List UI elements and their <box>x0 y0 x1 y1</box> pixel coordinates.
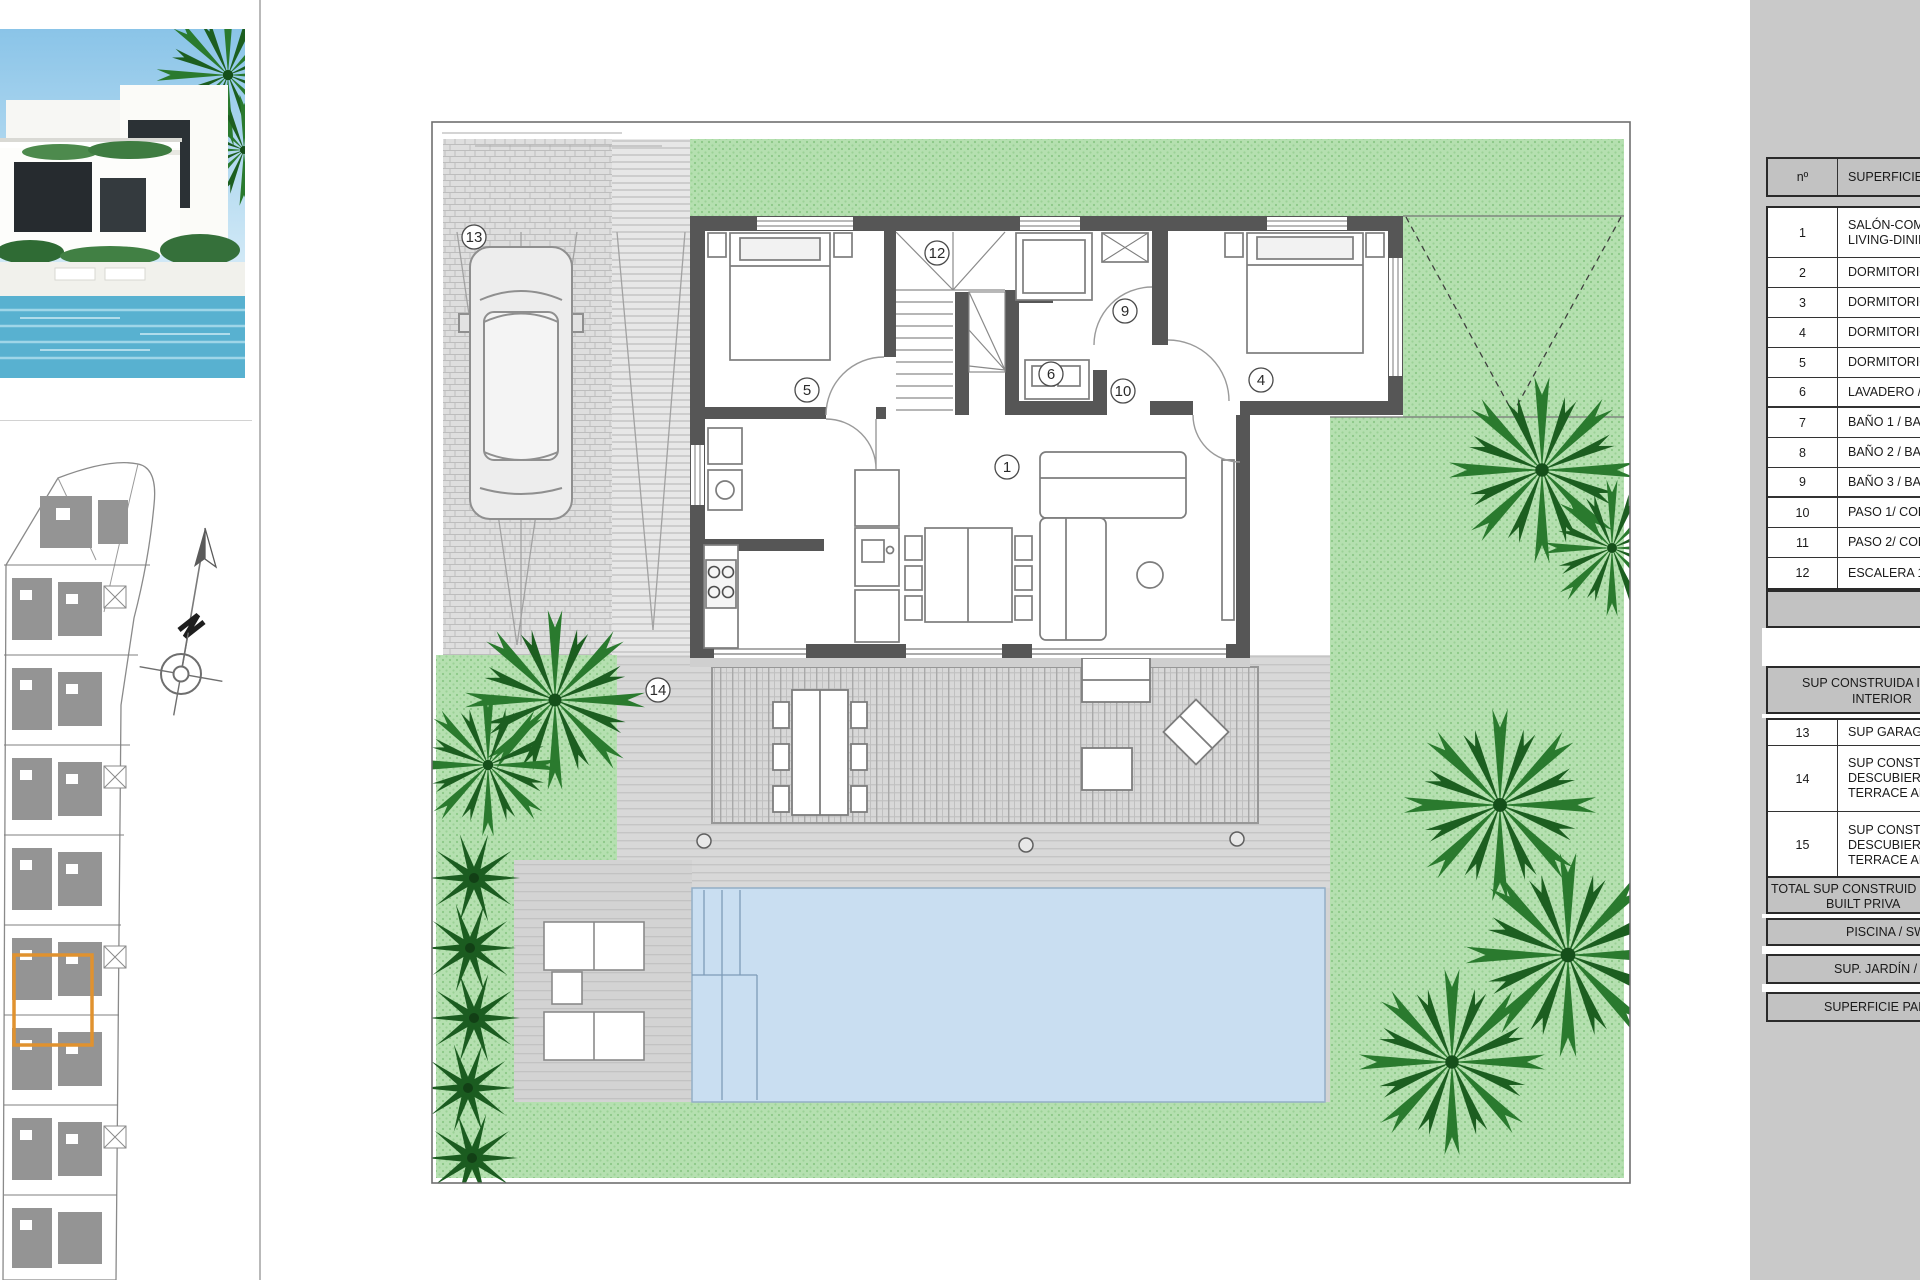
room-surface-table: 1 SALÓN-COMLIVING-DININ 2DORMITORIO 3DOR… <box>1766 206 1920 590</box>
table-row: 11PASO 2/ COR <box>1768 528 1920 558</box>
table-row: 6LAVADERO / <box>1768 378 1920 408</box>
table-row: 5DORMITORIO <box>1768 348 1920 378</box>
table-header-num: nº <box>1768 159 1838 195</box>
label-garage: 13 <box>466 229 483 246</box>
photo-pool <box>0 262 245 378</box>
table-row: 9BAÑO 3 / BA <box>1768 468 1920 498</box>
layout-divider-line <box>259 0 261 1280</box>
label-terrace: 14 <box>650 682 667 699</box>
label-laundry: 6 <box>1047 366 1055 383</box>
label-hallway: 10 <box>1115 383 1132 400</box>
table-row: 12ESCALERA 1 / <box>1768 558 1920 588</box>
table-row: 10PASO 1/ COR <box>1768 498 1920 528</box>
drawing-sheet: 13 12 5 9 6 10 4 1 14 nº SUPERFICIE Ú 1 … <box>0 0 1920 1280</box>
section-header: SUP CONSTRUIDA I INTERIOR <box>1766 666 1920 714</box>
pool-surface-row: PISCINA / SWIM <box>1766 918 1920 946</box>
bedroom-right-furniture <box>1225 233 1384 353</box>
panel-gap <box>1762 946 1920 954</box>
swimming-pool <box>692 888 1325 1102</box>
plan-canvas: 13 12 5 9 6 10 4 1 14 <box>0 0 1920 1280</box>
table-header-title: SUPERFICIE Ú <box>1838 170 1920 185</box>
label-bathroom: 9 <box>1121 303 1129 320</box>
total-row: TOTAL SUP CONSTRUID BUILT PRIVA <box>1766 876 1920 914</box>
label-bedroom-left: 5 <box>803 382 811 399</box>
label-living: 1 <box>1003 459 1011 476</box>
table-spacer-row <box>1766 590 1920 628</box>
label-bedroom-right: 4 <box>1257 372 1265 389</box>
panel-gap <box>1762 628 1920 666</box>
garage-driveway <box>442 133 690 655</box>
table-row: 1 SALÓN-COMLIVING-DININ <box>1768 208 1920 258</box>
table-row: 3DORMITORIO <box>1768 288 1920 318</box>
photo-villa <box>0 85 240 266</box>
garden-surface-row: SUP. JARDÍN / G <box>1766 954 1920 984</box>
table-header: nº SUPERFICIE Ú <box>1766 157 1920 197</box>
left-column-separator <box>0 420 252 421</box>
panel-gap <box>1762 984 1920 992</box>
label-stairs: 12 <box>929 245 946 262</box>
outdoor-surface-table: 13SUP GARAGE 14 SUP CONSTRDESCUBIERTATER… <box>1766 718 1920 880</box>
plot-surface-row: SUPERFICIE PARCE <box>1766 992 1920 1022</box>
table-row: 13SUP GARAGE <box>1768 720 1920 746</box>
bedroom-left-furniture <box>708 233 852 360</box>
table-row: 4DORMITORIO <box>1768 318 1920 348</box>
car <box>459 247 583 519</box>
table-row: 2DORMITORIO <box>1768 258 1920 288</box>
table-row: 14 SUP CONSTRDESCUBIERTATERRACE ARE <box>1768 746 1920 812</box>
table-row: 7BAÑO 1 / BA <box>1768 408 1920 438</box>
site-plan <box>3 463 155 1280</box>
outdoor-dining-set <box>773 690 867 815</box>
table-row: 8BAÑO 2 / BA <box>1768 438 1920 468</box>
table-row: 15 SUP CONSTRDESCUBIERTATERRACE ARE <box>1768 812 1920 878</box>
